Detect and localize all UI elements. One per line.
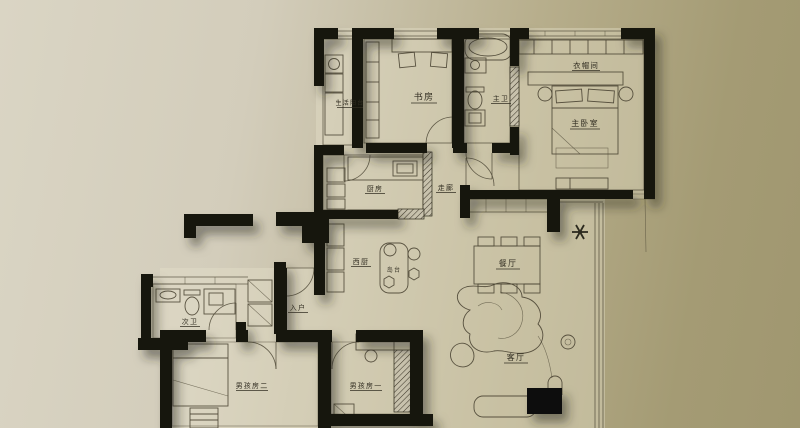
room-label-master-bath: 主卫 <box>493 94 509 103</box>
room-label-dining: 餐厅 <box>499 259 517 268</box>
room-label-entry: 入户 <box>290 303 306 312</box>
room-label-boys-room-2: 男孩房二 <box>236 381 269 390</box>
closet-sliding-door <box>510 67 519 126</box>
room-label-island: 岛台 <box>387 266 401 274</box>
kitchen-pass <box>398 209 424 219</box>
room-label-master-bedroom: 主卧室 <box>571 118 599 128</box>
duct-shaft <box>423 152 432 216</box>
room-label-boys-room-1: 男孩房一 <box>350 381 383 390</box>
floor-plan-canvas: 生活阳台 书房 主卫 衣帽间 主卧室 厨房 走廊 西厨 岛台 餐厅 入户 次卫 … <box>0 0 800 428</box>
room-label-living: 客厅 <box>507 352 525 362</box>
room-label-corridor: 走廊 <box>438 183 454 192</box>
room-label-second-bath: 次卫 <box>182 317 198 326</box>
room-label-west-kitchen: 西厨 <box>353 258 369 266</box>
wardrobe-boys-room-1 <box>394 350 411 412</box>
room-label-utility-balcony: 生活阳台 <box>336 99 365 107</box>
tv-screen <box>527 388 562 414</box>
room-label-cloakroom: 衣帽间 <box>573 60 599 70</box>
room-label-kitchen: 厨房 <box>367 184 383 193</box>
floor-plan-svg: 生活阳台 书房 主卫 衣帽间 主卧室 厨房 走廊 西厨 岛台 餐厅 入户 次卫 … <box>0 0 800 428</box>
room-label-study: 书房 <box>414 91 434 103</box>
